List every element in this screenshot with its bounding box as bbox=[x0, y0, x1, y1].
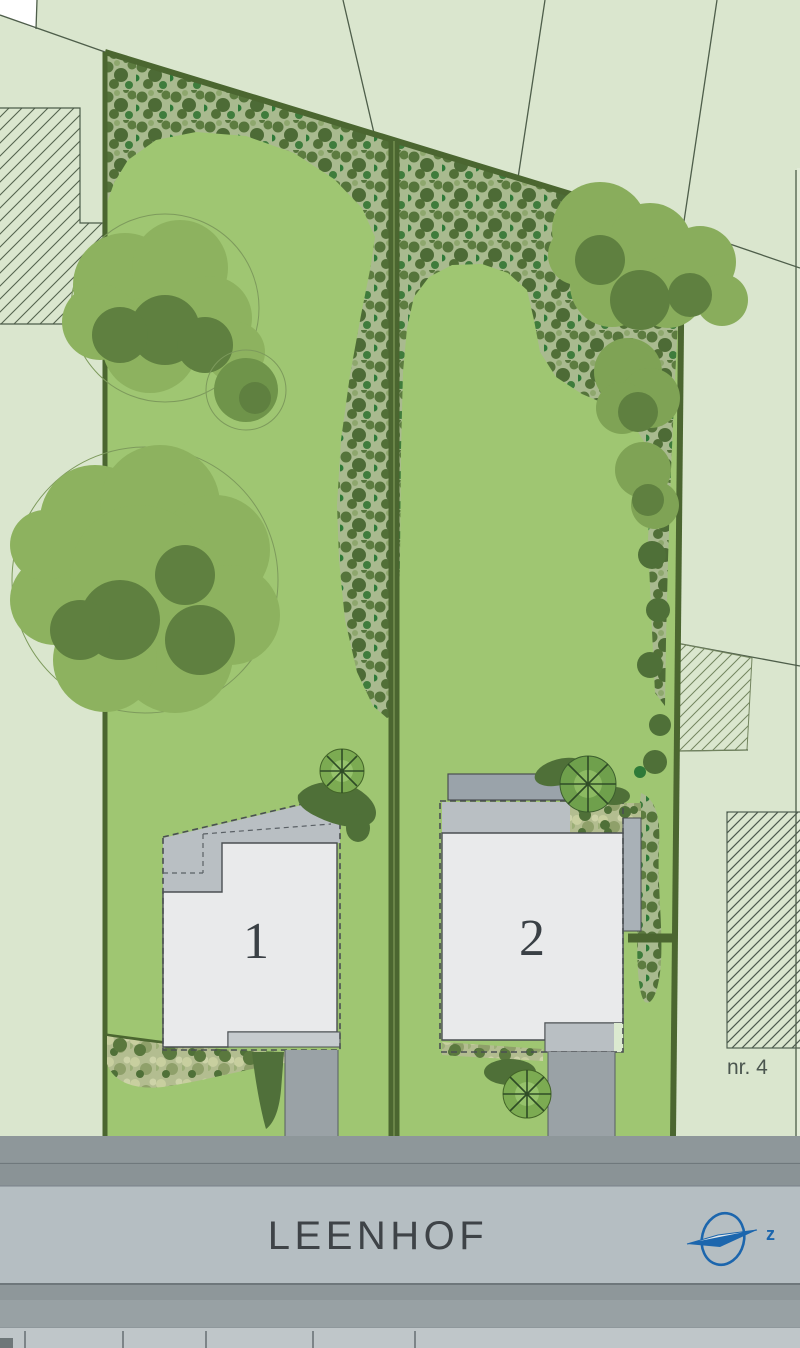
building-2-terrace bbox=[545, 1023, 623, 1052]
neighbor-house-number-label: nr. 4 bbox=[727, 1056, 768, 1079]
sidewalk-corner-patch bbox=[0, 1338, 13, 1348]
building-2-annex bbox=[623, 818, 641, 931]
building-1: 1 bbox=[163, 795, 340, 1050]
street-gutter-north bbox=[0, 1164, 800, 1186]
site-plan-canvas: 1 2 bbox=[0, 0, 800, 1348]
driveway-plot2 bbox=[548, 1052, 615, 1137]
street-sidewalk bbox=[0, 1328, 800, 1348]
building-2: 2 bbox=[440, 774, 641, 1052]
plot-2-number: 2 bbox=[519, 910, 545, 967]
street: LEENHOF bbox=[0, 1136, 800, 1348]
street-name-label: LEENHOF bbox=[268, 1214, 488, 1258]
neighbor-structure-east bbox=[676, 643, 752, 751]
plot-1-number: 1 bbox=[243, 913, 269, 970]
building-2-green-patch bbox=[614, 1023, 623, 1052]
street-gutter-south bbox=[0, 1285, 800, 1300]
site-plan-drawing: 1 2 bbox=[0, 0, 800, 1348]
neighbor-building-nr4 bbox=[727, 812, 800, 1048]
building-1-terrace bbox=[228, 1032, 340, 1047]
street-verge-north bbox=[0, 1136, 800, 1163]
street-verge-south bbox=[0, 1300, 800, 1328]
building-2-mid-band bbox=[442, 802, 570, 833]
compass-letter: z bbox=[766, 1224, 775, 1244]
driveway-plot1 bbox=[285, 1050, 338, 1137]
